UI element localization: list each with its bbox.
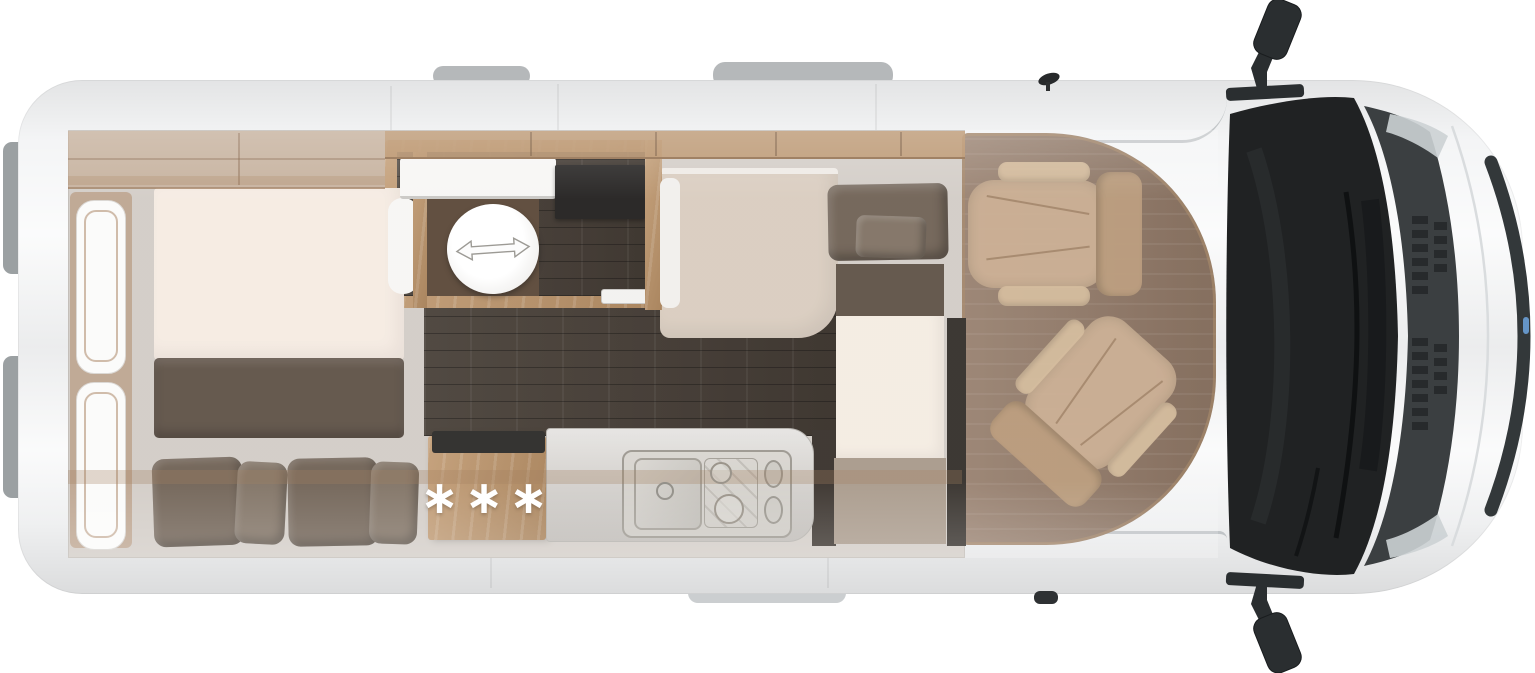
bathroom-door-handle [601, 289, 649, 304]
brand-glint [1523, 317, 1529, 334]
dinette-cabinet-door [660, 178, 680, 308]
cabinet-divider [530, 132, 532, 156]
bed-mattress [154, 188, 404, 360]
hob-control-knob [764, 496, 783, 524]
cabinet-shelf-line [68, 158, 385, 160]
bed-blanket [154, 358, 404, 438]
cabinet-divider [655, 132, 657, 156]
bench-pillow-small [855, 215, 926, 259]
van-floorplan-top-view: ∗∗∗ [0, 0, 1535, 673]
bench-backrest [836, 264, 944, 316]
driver-swivel-seat [968, 168, 1168, 300]
roof-seam [557, 84, 559, 132]
overhead-cabinet-mid [385, 131, 965, 159]
hob-burner [714, 494, 744, 524]
rear-door-trim [84, 392, 118, 538]
kitchen-counter-slot [432, 431, 545, 453]
bench-seat-cushion [836, 316, 944, 460]
roof-seam [875, 84, 877, 132]
seat-armrest [998, 162, 1090, 182]
cab-partition-band [947, 318, 966, 546]
side-wall-rail-top [68, 176, 385, 185]
bathroom-vanity-shelf [400, 158, 556, 199]
rear-door-trim [84, 210, 118, 362]
sliding-door-handle [1034, 591, 1058, 604]
dinette-side-panel [660, 168, 838, 338]
bathroom-dark-cabinet [555, 165, 645, 219]
toilet-slide-arrow-icon [452, 233, 534, 265]
cabinet-divider [900, 132, 902, 156]
cabinet-divider [775, 132, 777, 156]
hob-burner [710, 462, 732, 484]
seat-armrest [998, 286, 1090, 306]
counter-side-gap [812, 430, 836, 546]
sink-drain [656, 482, 674, 500]
roof-seam [390, 86, 392, 132]
toilet-slide-arrow-icon [456, 237, 530, 261]
side-wall-rail-bottom [68, 470, 962, 484]
seat-backrest [1096, 172, 1142, 296]
